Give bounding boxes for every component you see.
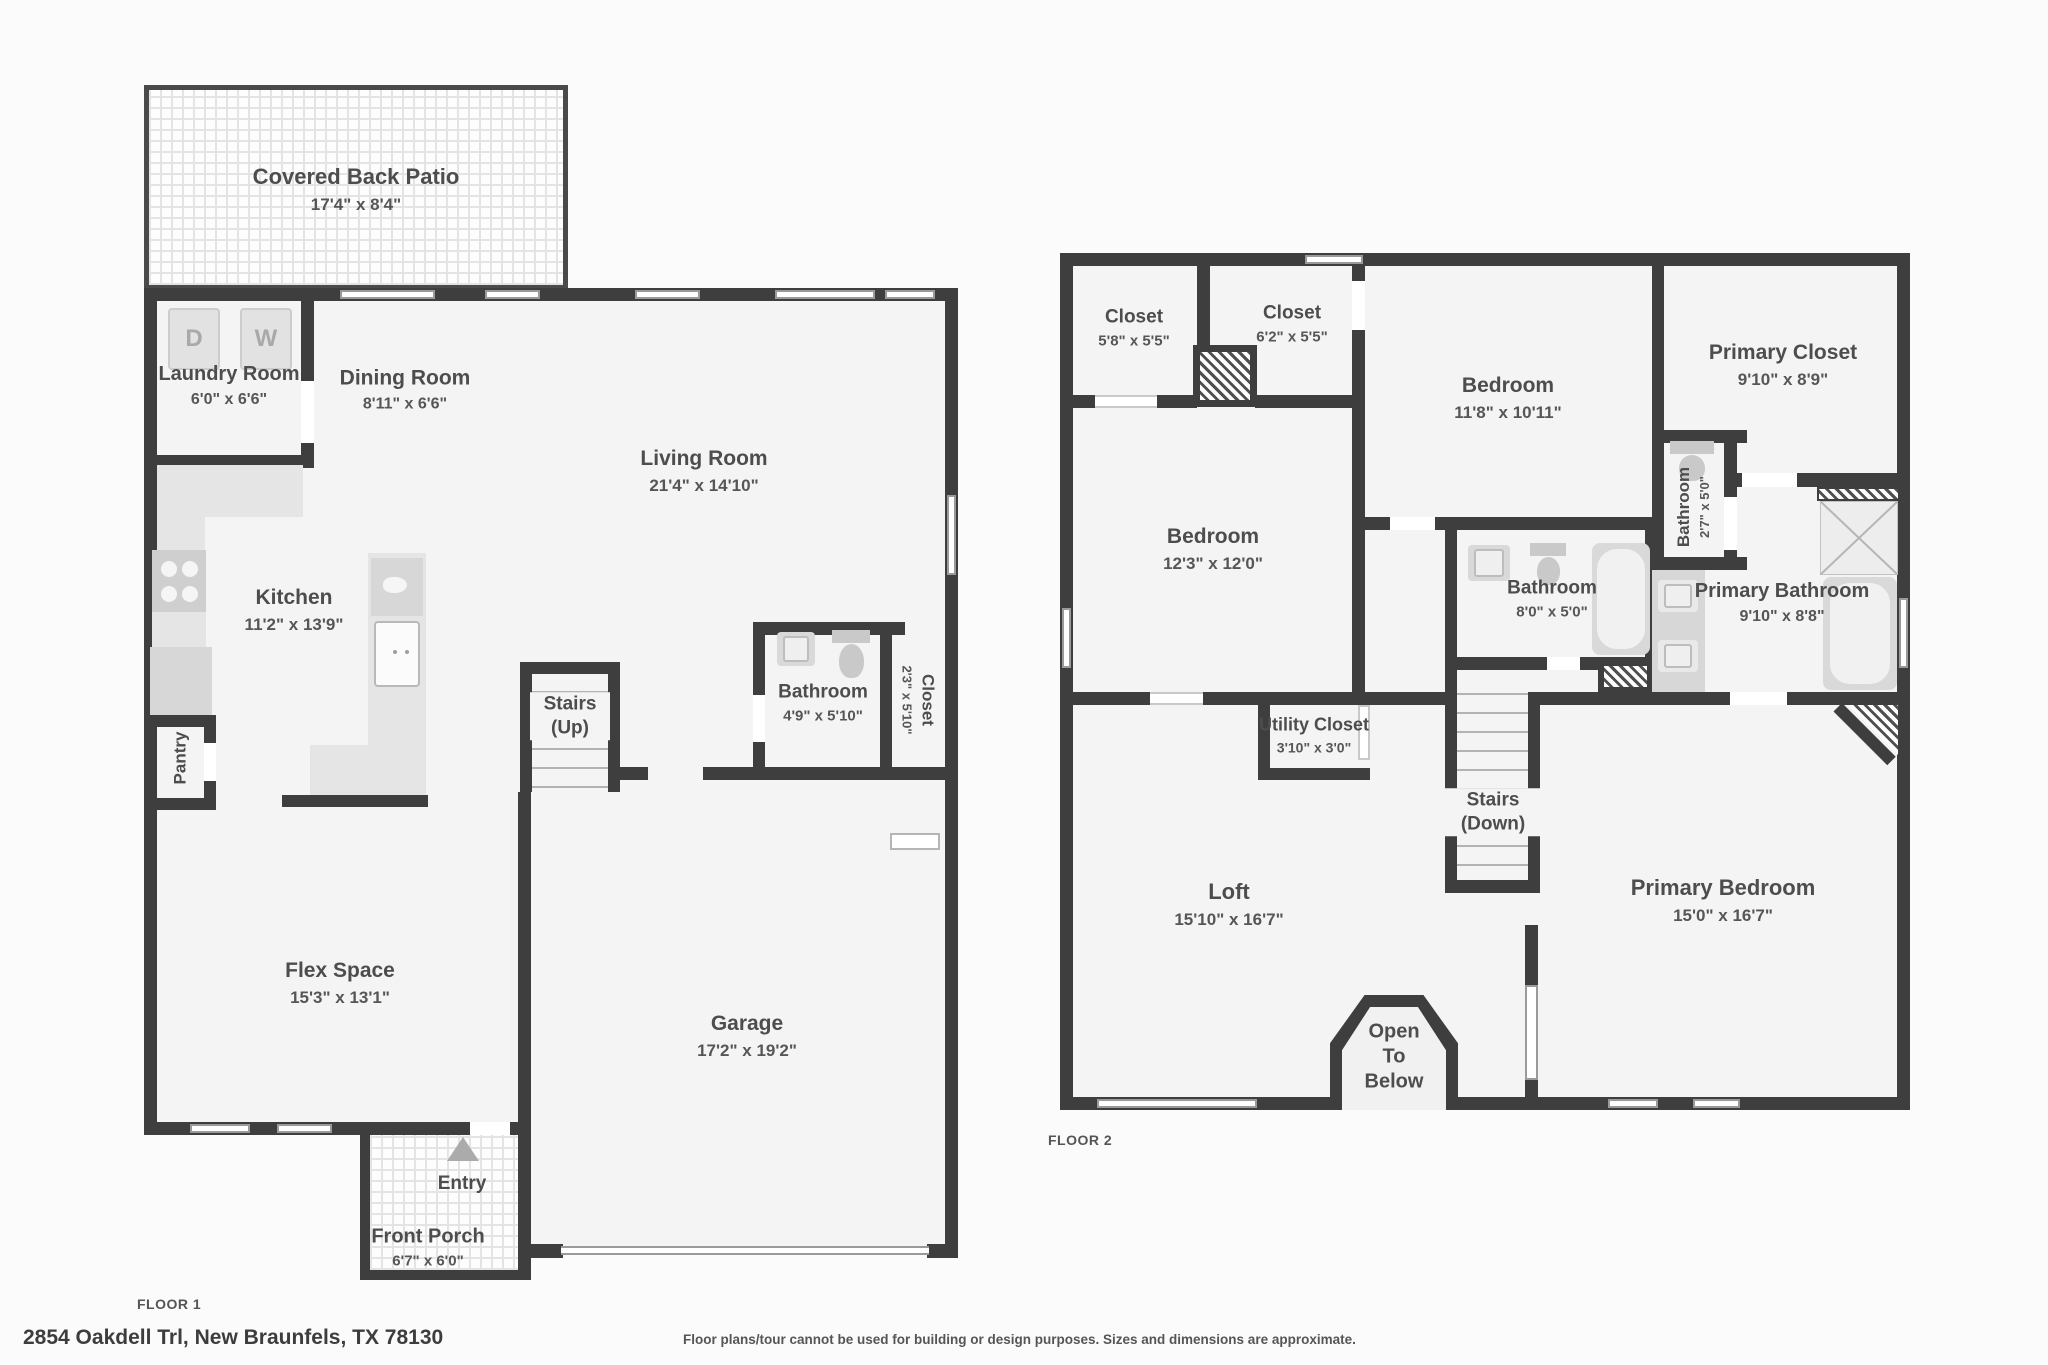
door-opening (753, 695, 765, 742)
wall (1197, 266, 1210, 351)
disclaimer: Floor plans/tour cannot be used for buil… (683, 1332, 1356, 1347)
window (1305, 255, 1363, 264)
room-label-bathroom-small: Bathroom 2'7" x 5'0" (1673, 467, 1714, 547)
front-door-opening (470, 1122, 510, 1135)
chase-hatch (1193, 345, 1257, 407)
washer-letter: W (255, 325, 278, 353)
half-wall (282, 795, 428, 807)
wall (1258, 768, 1370, 780)
room-label-dining: Dining Room 8'11" x 6'6" (340, 365, 471, 414)
toilet-bowl-icon (839, 644, 864, 678)
room-label-bathroom-hall: Bathroom 8'0" x 5'0" (1507, 576, 1597, 622)
floorplan-canvas: Covered Back Patio 17'4" x 8'4" D W Laun… (0, 0, 2048, 1365)
window (1899, 598, 1908, 668)
wall (753, 622, 765, 695)
wall (1724, 443, 1737, 497)
wall (1525, 925, 1538, 985)
window (1525, 985, 1538, 1080)
room-label-laundry: Laundry Room 6'0" x 6'6" (158, 362, 299, 410)
door-opening (1547, 657, 1580, 670)
wall (880, 622, 892, 780)
wall (753, 767, 905, 780)
room-label-porch: Front Porch 6'7" x 6'0" (371, 1225, 484, 1272)
toilet-icon (832, 630, 870, 643)
window (340, 290, 435, 299)
wall (1787, 692, 1910, 705)
chase-hatch (1598, 660, 1653, 693)
window (1062, 608, 1071, 668)
wall (1528, 692, 1730, 705)
wall (1652, 266, 1664, 430)
fridge-handle-icon (393, 650, 397, 654)
wall (1724, 550, 1737, 570)
room-label-garage: Garage 17'2" x 19'2" (697, 1011, 797, 1062)
wall (520, 662, 620, 674)
sink-icon (1658, 580, 1698, 612)
room-label-closet1: Closet 2'3" x 5'10" (898, 665, 939, 734)
wall (204, 715, 216, 743)
door-opening (1724, 497, 1737, 550)
window (190, 1124, 250, 1133)
floor1-label: FLOOR 1 (137, 1296, 201, 1312)
wall (1255, 395, 1365, 408)
room-label-bathroom1: Bathroom 4'9" x 5'10" (778, 680, 868, 726)
wall (1060, 253, 1073, 1110)
dryer-icon: D (168, 308, 220, 370)
room-label-living: Living Room 21'4" x 14'10" (640, 446, 767, 497)
stove-icon (152, 550, 206, 612)
wall (1525, 1080, 1538, 1097)
wall (301, 301, 314, 381)
wall (703, 767, 753, 780)
door-opening (1095, 395, 1157, 408)
window (1693, 1099, 1740, 1108)
wall (892, 767, 958, 780)
wall (1445, 880, 1540, 893)
kitchen-counter (152, 612, 206, 647)
shower-icon (1820, 501, 1898, 575)
window (775, 290, 875, 299)
kitchen-counter (157, 465, 303, 517)
stairs-down-steps (1457, 676, 1528, 880)
door-opening (1150, 692, 1203, 705)
window (635, 290, 700, 299)
wall (518, 1258, 531, 1280)
wall (1652, 443, 1664, 570)
wall (1352, 266, 1365, 281)
attic-hatch (1817, 487, 1900, 501)
room-label-bedroom1: Bedroom 12'3" x 12'0" (1163, 524, 1263, 575)
kitchen-counter (157, 517, 205, 552)
wall (531, 1244, 563, 1258)
window (485, 290, 540, 299)
toilet-icon (1530, 543, 1566, 556)
sink-basin-icon (383, 577, 407, 593)
wall (1445, 670, 1457, 893)
window (1608, 1099, 1658, 1108)
toilet-icon (1670, 441, 1714, 454)
sink-icon (1468, 545, 1510, 581)
door-opening (301, 381, 314, 443)
wall (1157, 395, 1197, 408)
wall (927, 1244, 958, 1258)
window (1097, 1099, 1257, 1108)
wall (518, 792, 531, 1258)
wall (1060, 395, 1095, 408)
garage-door (561, 1246, 929, 1255)
room-label-open-below: Open To Below (1359, 1020, 1429, 1095)
door-opening (204, 743, 216, 781)
room-label-bedroom2: Bedroom 11'8" x 10'11" (1454, 373, 1561, 424)
room-label-stairs-up: Stairs (Up) (530, 692, 610, 740)
room-label-stairs-down: Stairs (Down) (1443, 788, 1543, 836)
wall (1897, 253, 1910, 1110)
room-label-closet-a: Closet 5'8" x 5'5" (1098, 305, 1169, 351)
window (947, 495, 956, 575)
wall (360, 1270, 528, 1280)
bathtub-icon (1592, 543, 1650, 655)
sink-icon (1658, 640, 1698, 672)
wall (608, 767, 648, 780)
room-label-pantry: Pantry (169, 732, 190, 785)
room-label-utility: Utility Closet 3'10" x 3'0" (1259, 714, 1369, 757)
wall (144, 798, 216, 810)
room-label-primary-bedroom: Primary Bedroom 15'0" x 16'7" (1631, 874, 1816, 926)
door-opening (1742, 473, 1797, 487)
dishwasher-icon (150, 647, 212, 715)
wall (1203, 692, 1445, 705)
room-label-loft: Loft 15'10" x 16'7" (1174, 878, 1283, 930)
room-label-patio: Covered Back Patio 17'4" x 8'4" (253, 163, 460, 215)
kitchen-counter (310, 745, 426, 795)
room-label-entry: Entry (438, 1172, 487, 1196)
room-label-primary-closet: Primary Closet 9'10" x 8'9" (1709, 340, 1857, 391)
wall (1060, 253, 1910, 266)
garage-side-door (890, 833, 940, 850)
door-opening (1730, 692, 1787, 705)
floor2-label: FLOOR 2 (1048, 1132, 1112, 1148)
window (885, 290, 935, 299)
door-opening (1352, 281, 1365, 330)
sink-icon (777, 632, 815, 666)
window (277, 1124, 332, 1133)
wall (360, 1135, 370, 1280)
room-label-primary-bathroom: Primary Bathroom 9'10" x 8'8" (1695, 579, 1870, 627)
wall (1445, 530, 1457, 670)
room-label-kitchen: Kitchen 11'2" x 13'9" (245, 585, 344, 636)
entry-arrow-icon (447, 1137, 479, 1161)
wall (1352, 330, 1365, 692)
door-opening (1390, 517, 1435, 530)
fridge-handle-icon (405, 650, 409, 654)
wall (1060, 692, 1150, 705)
dryer-letter: D (185, 325, 202, 353)
room-label-closet-b: Closet 6'2" x 5'5" (1256, 301, 1327, 347)
room-label-flex: Flex Space 15'3" x 13'1" (285, 958, 395, 1009)
washer-icon: W (240, 308, 292, 370)
fridge-icon (374, 621, 420, 687)
address: 2854 Oakdell Trl, New Braunfels, TX 7813… (23, 1326, 443, 1350)
